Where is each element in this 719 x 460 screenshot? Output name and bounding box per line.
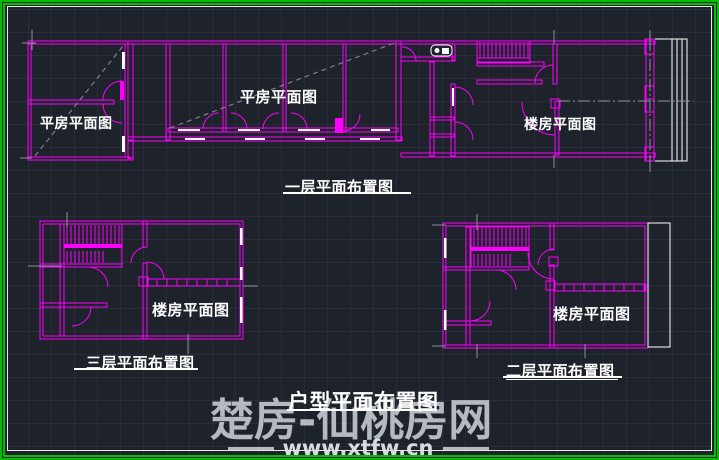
plan-label-building-floor2: 楼房平面图 [553, 303, 631, 324]
plan-label-flat-house-left: 平房平面图 [40, 113, 113, 133]
staircase-hatch [474, 228, 526, 247]
staircase-hatch [67, 225, 119, 244]
watermark-right-dash [443, 447, 489, 450]
plan-third-floor [28, 212, 258, 354]
balcony-outline [648, 223, 670, 347]
plan-label-flat-house-mid: 平房平面图 [240, 86, 318, 107]
title-underline [503, 376, 622, 378]
plan-second-floor [432, 214, 670, 358]
title-underline [506, 379, 618, 380]
plan-title-second-floor: 二层平面布置图 [506, 360, 615, 381]
toilet-icon [431, 45, 452, 56]
title-underline [283, 192, 411, 194]
plan-label-building-floor3: 楼房平面图 [152, 299, 230, 320]
drawing-main-title: 户型平面布置图 [288, 386, 439, 416]
balcony-lines [655, 39, 687, 161]
watermark-left-dash [228, 447, 274, 450]
cad-drawing-viewport[interactable]: 楚房-仙桃房网 www.xtfw.cn 平房平面图 平房平面图 楼房平面图 一层… [0, 0, 719, 460]
title-underline [74, 368, 198, 370]
plan-first-floor-strip [20, 30, 694, 172]
watermark-url-row: www.xtfw.cn [214, 436, 502, 460]
title-underline [287, 409, 437, 411]
plan-label-building-top: 楼房平面图 [524, 114, 597, 134]
watermark-site-url: www.xtfw.cn [283, 436, 434, 460]
